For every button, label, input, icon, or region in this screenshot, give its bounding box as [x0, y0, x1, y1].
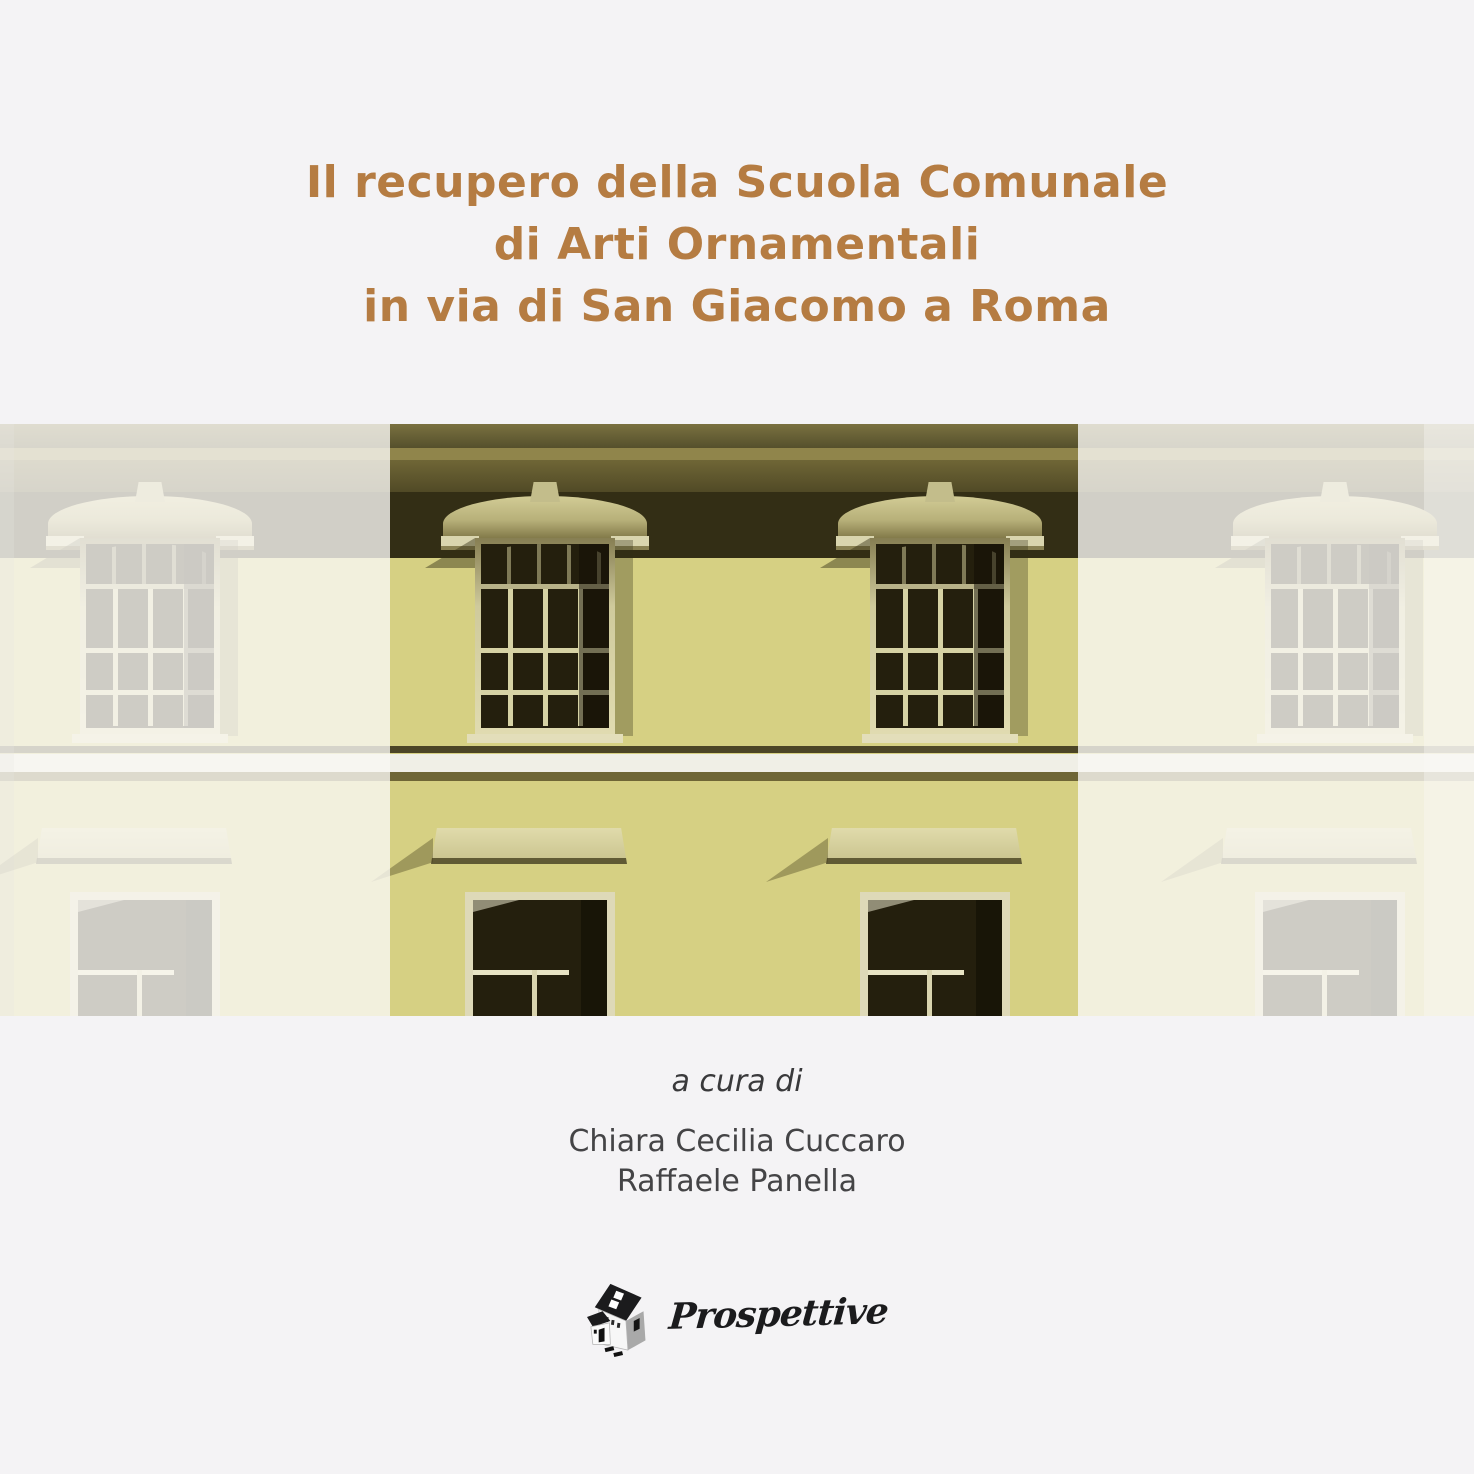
- lower-window: [860, 892, 1010, 1016]
- sash-bar: [532, 970, 537, 1016]
- publisher-logo: Prospettive: [0, 1276, 1474, 1362]
- publisher-name: Prospettive: [667, 1290, 890, 1348]
- upper-window: [870, 538, 1010, 734]
- reveal-shadow: [615, 540, 633, 736]
- upper-window: [475, 538, 615, 734]
- pediment-keystone: [530, 482, 560, 502]
- sash-bar: [473, 970, 569, 975]
- window-hood: [826, 828, 1022, 864]
- window-sill: [467, 734, 623, 743]
- fade-overlay-left: [0, 424, 390, 1016]
- curated-by-label: a cura di: [0, 1064, 1474, 1099]
- sash-bar: [927, 970, 932, 1016]
- window-column: [870, 424, 1010, 1016]
- reveal-shadow: [1010, 540, 1028, 736]
- editors-block: Chiara Cecilia Cuccaro Raffaele Panella: [0, 1122, 1474, 1202]
- facade-photo: [0, 424, 1474, 1016]
- lower-window: [465, 892, 615, 1016]
- editor-name: Chiara Cecilia Cuccaro: [0, 1122, 1474, 1162]
- pediment-keystone: [925, 482, 955, 502]
- book-title: Il recupero della Scuola Comunale di Art…: [0, 152, 1474, 338]
- book-cover: Il recupero della Scuola Comunale di Art…: [0, 0, 1474, 1474]
- editor-name: Raffaele Panella: [0, 1162, 1474, 1202]
- window-column: [475, 424, 615, 1016]
- title-line-3: in via di San Giacomo a Roma: [0, 276, 1474, 338]
- hood-cast-shadow: [766, 838, 828, 882]
- fade-overlay-right: [1078, 424, 1474, 1016]
- publisher-house-icon: [587, 1278, 663, 1360]
- title-line-2: di Arti Ornamentali: [0, 214, 1474, 276]
- sash-bar: [868, 970, 964, 975]
- window-hood: [431, 828, 627, 864]
- window-sill: [862, 734, 1018, 743]
- title-line-1: Il recupero della Scuola Comunale: [0, 152, 1474, 214]
